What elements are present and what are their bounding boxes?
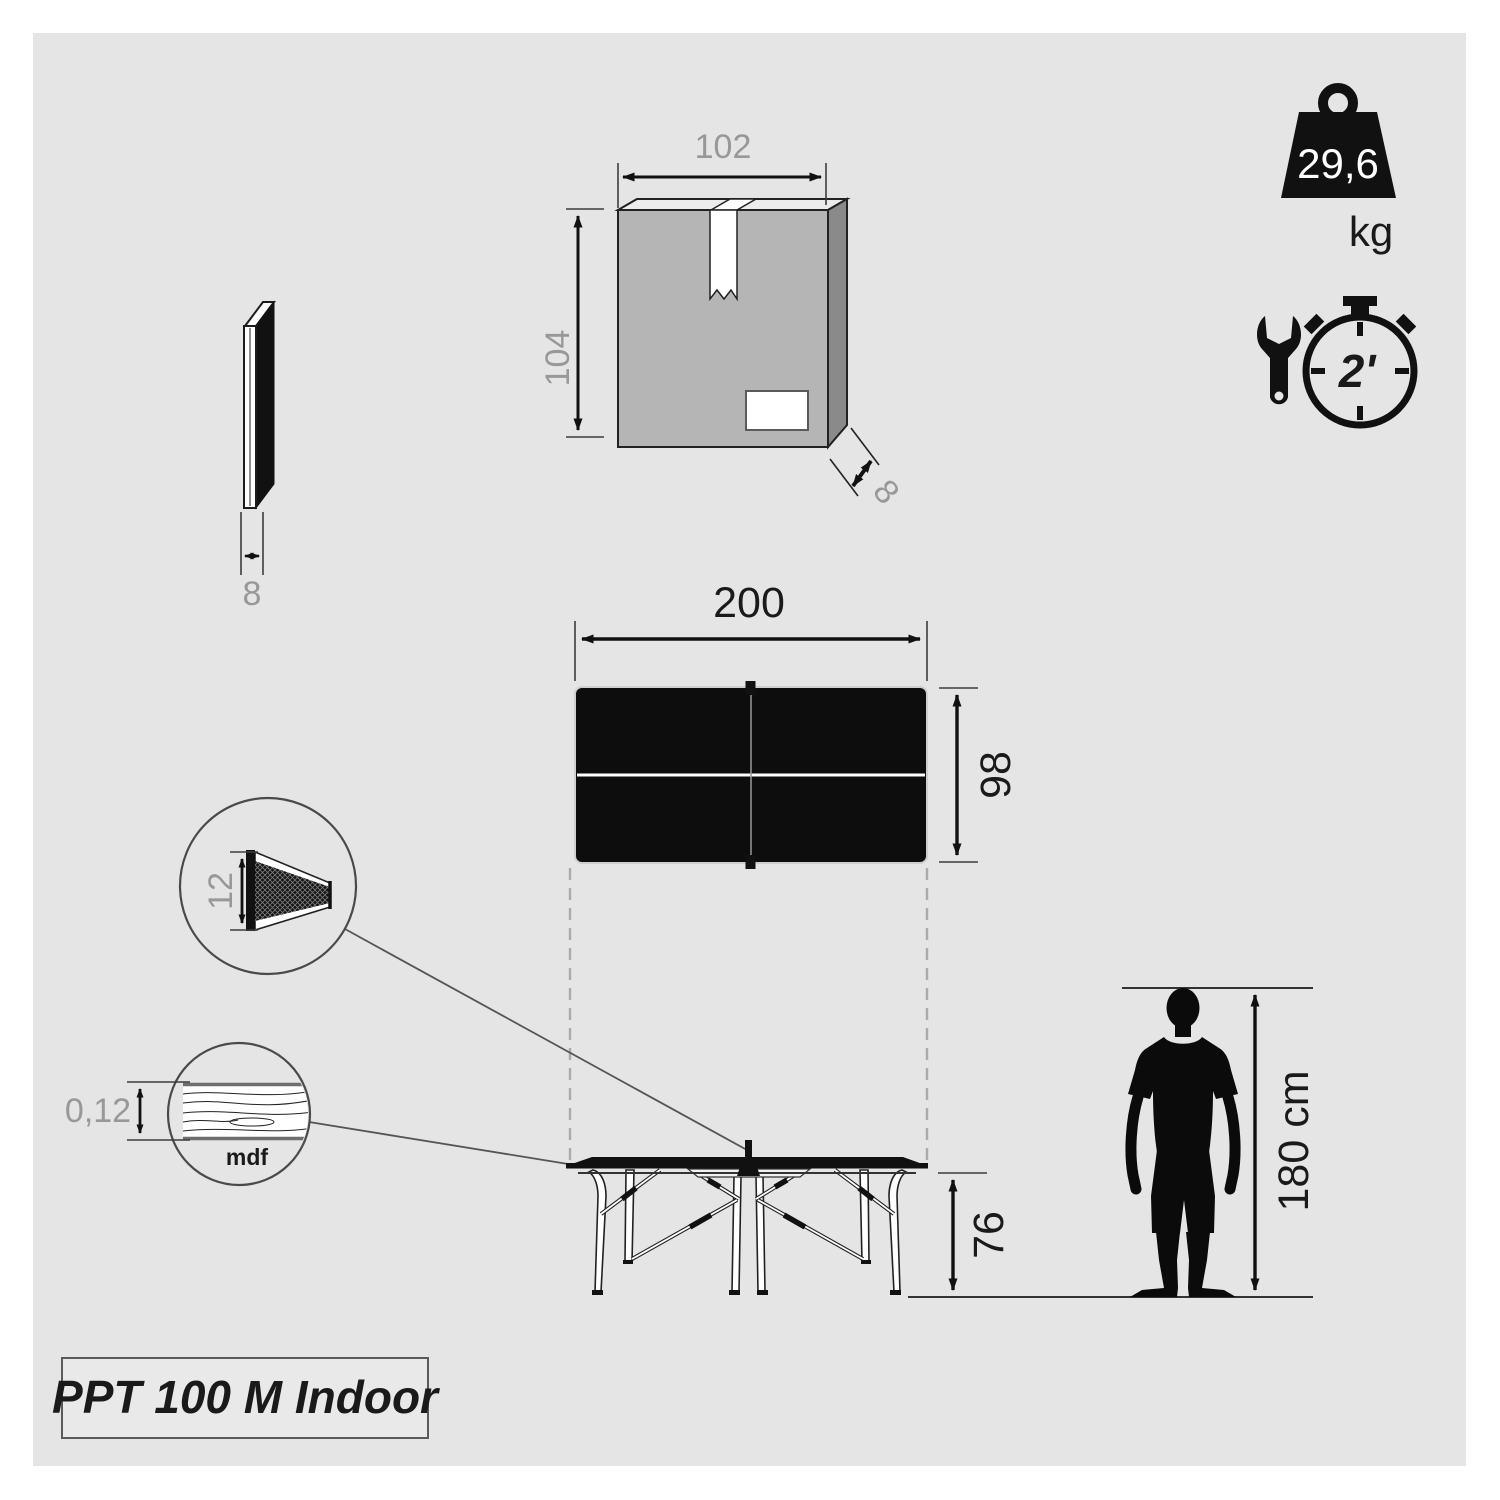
net-post-top-view xyxy=(746,681,756,695)
panel-thickness-value: 8 xyxy=(243,575,262,613)
wrench-hole xyxy=(1275,392,1284,401)
folded-panel-illustration xyxy=(244,302,274,508)
table-top-view xyxy=(575,681,927,869)
package-height-value: 104 xyxy=(539,330,577,387)
package-box-illustration xyxy=(618,199,847,447)
person-height-value: 180 cm xyxy=(1270,1070,1318,1211)
weight-value: 29,6 xyxy=(1297,140,1379,187)
top-thickness-value: 0,12 xyxy=(65,1092,131,1130)
assembly-time-value: 2' xyxy=(1338,345,1378,397)
leg-inner-left xyxy=(625,1170,634,1262)
table-length-value: 200 xyxy=(713,579,785,627)
net-height-value: 12 xyxy=(202,872,240,910)
mdf-material-label: mdf xyxy=(226,1144,269,1170)
package-width-value: 102 xyxy=(695,128,752,166)
spec-sheet: 8 102 104 8 29,6 kg xyxy=(0,0,1500,1500)
diagram-canvas: 8 102 104 8 29,6 kg xyxy=(0,0,1500,1500)
net-detail-post xyxy=(246,850,255,931)
table-width-value: 98 xyxy=(972,751,1020,799)
product-label-plate: PPT 100 M Indoor xyxy=(52,1358,440,1438)
box-tape-front xyxy=(710,210,737,299)
mdf-wood-sample xyxy=(183,1083,313,1140)
table-height-value: 76 xyxy=(965,1211,1013,1259)
product-name: PPT 100 M Indoor xyxy=(52,1371,440,1423)
weight-unit: kg xyxy=(1349,208,1393,255)
leg-inner-right xyxy=(860,1170,869,1262)
net-detail-circle: 12 xyxy=(180,798,356,974)
box-shipping-label xyxy=(746,391,808,430)
net-post-bottom-view xyxy=(746,855,756,869)
